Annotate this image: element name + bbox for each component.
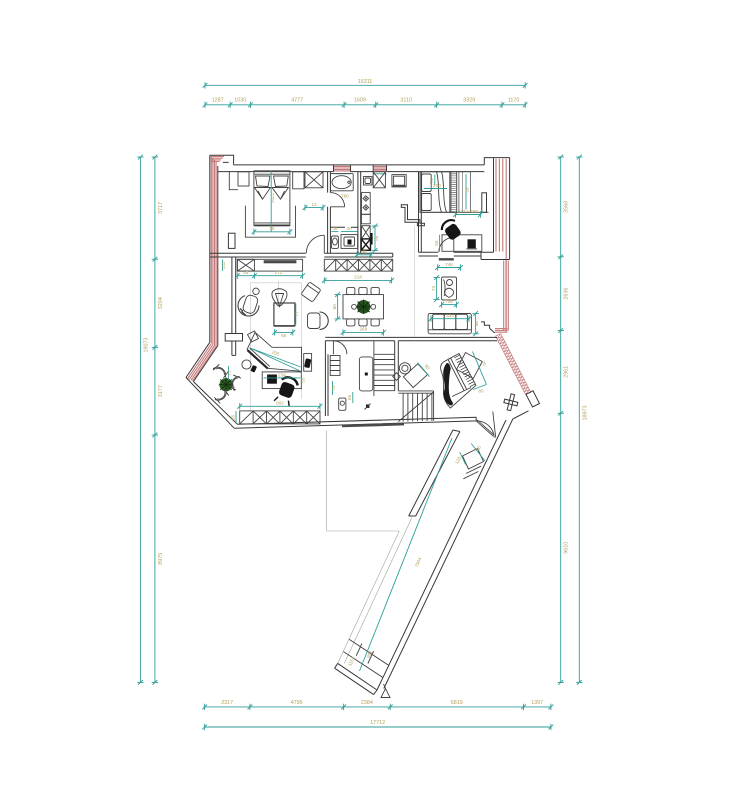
svg-text:3568: 3568 bbox=[564, 201, 570, 213]
svg-text:2022: 2022 bbox=[270, 192, 275, 203]
svg-text:20: 20 bbox=[347, 226, 353, 231]
svg-text:88: 88 bbox=[474, 321, 479, 327]
svg-text:3717: 3717 bbox=[158, 202, 164, 214]
svg-text:55: 55 bbox=[347, 395, 352, 401]
svg-text:205: 205 bbox=[271, 349, 280, 356]
svg-text:8975: 8975 bbox=[158, 553, 164, 565]
svg-text:120: 120 bbox=[454, 455, 462, 464]
svg-text:3204: 3204 bbox=[158, 297, 164, 309]
svg-text:3110: 3110 bbox=[400, 98, 412, 104]
svg-text:3329: 3329 bbox=[463, 98, 475, 104]
svg-text:18973: 18973 bbox=[582, 406, 588, 421]
svg-text:802: 802 bbox=[276, 401, 284, 406]
svg-text:334: 334 bbox=[446, 313, 454, 318]
svg-text:55: 55 bbox=[230, 415, 235, 421]
svg-text:780: 780 bbox=[341, 194, 349, 199]
svg-text:16311: 16311 bbox=[358, 79, 373, 85]
svg-text:80: 80 bbox=[332, 304, 337, 310]
svg-text:1397: 1397 bbox=[531, 700, 543, 706]
svg-text:2384: 2384 bbox=[361, 700, 373, 706]
svg-text:75: 75 bbox=[331, 385, 336, 391]
svg-text:12: 12 bbox=[311, 202, 317, 207]
svg-text:80: 80 bbox=[475, 445, 482, 452]
svg-text:7504: 7504 bbox=[414, 556, 423, 568]
svg-text:1030: 1030 bbox=[234, 98, 246, 104]
svg-text:268: 268 bbox=[359, 327, 367, 332]
svg-text:211: 211 bbox=[221, 261, 226, 269]
svg-text:517 x 680: 517 x 680 bbox=[458, 209, 479, 214]
svg-text:1170: 1170 bbox=[508, 98, 520, 104]
svg-text:65: 65 bbox=[281, 333, 287, 338]
svg-text:2636: 2636 bbox=[564, 288, 570, 300]
svg-text:214: 214 bbox=[354, 275, 362, 280]
svg-text:17712: 17712 bbox=[370, 720, 385, 726]
svg-text:2317: 2317 bbox=[221, 700, 233, 706]
svg-text:3177: 3177 bbox=[158, 385, 164, 397]
svg-text:77: 77 bbox=[227, 370, 232, 376]
svg-text:90: 90 bbox=[424, 363, 431, 370]
svg-text:200: 200 bbox=[433, 183, 441, 188]
svg-text:19073: 19073 bbox=[144, 338, 150, 353]
svg-text:1151: 1151 bbox=[347, 655, 356, 666]
svg-text:708: 708 bbox=[445, 299, 453, 304]
svg-text:9610: 9610 bbox=[564, 542, 570, 554]
svg-text:1609: 1609 bbox=[354, 98, 366, 104]
svg-text:70: 70 bbox=[481, 360, 488, 367]
svg-text:1287: 1287 bbox=[212, 98, 224, 104]
svg-text:4777: 4777 bbox=[291, 98, 303, 104]
svg-text:55: 55 bbox=[300, 377, 305, 383]
svg-text:55: 55 bbox=[434, 240, 439, 246]
svg-text:234: 234 bbox=[278, 372, 286, 377]
svg-text:74: 74 bbox=[431, 286, 436, 292]
svg-text:172: 172 bbox=[275, 270, 283, 275]
svg-text:58: 58 bbox=[361, 249, 367, 254]
svg-text:77: 77 bbox=[294, 311, 299, 317]
svg-text:18: 18 bbox=[269, 226, 275, 231]
svg-text:4795: 4795 bbox=[291, 700, 303, 706]
svg-text:55: 55 bbox=[374, 235, 379, 241]
svg-text:28: 28 bbox=[465, 187, 470, 193]
svg-text:38: 38 bbox=[332, 226, 338, 231]
svg-text:6819: 6819 bbox=[451, 700, 463, 706]
svg-text:80: 80 bbox=[478, 389, 484, 394]
svg-text:748: 748 bbox=[445, 262, 453, 267]
svg-text:45: 45 bbox=[243, 270, 249, 275]
svg-text:2961: 2961 bbox=[564, 366, 570, 378]
